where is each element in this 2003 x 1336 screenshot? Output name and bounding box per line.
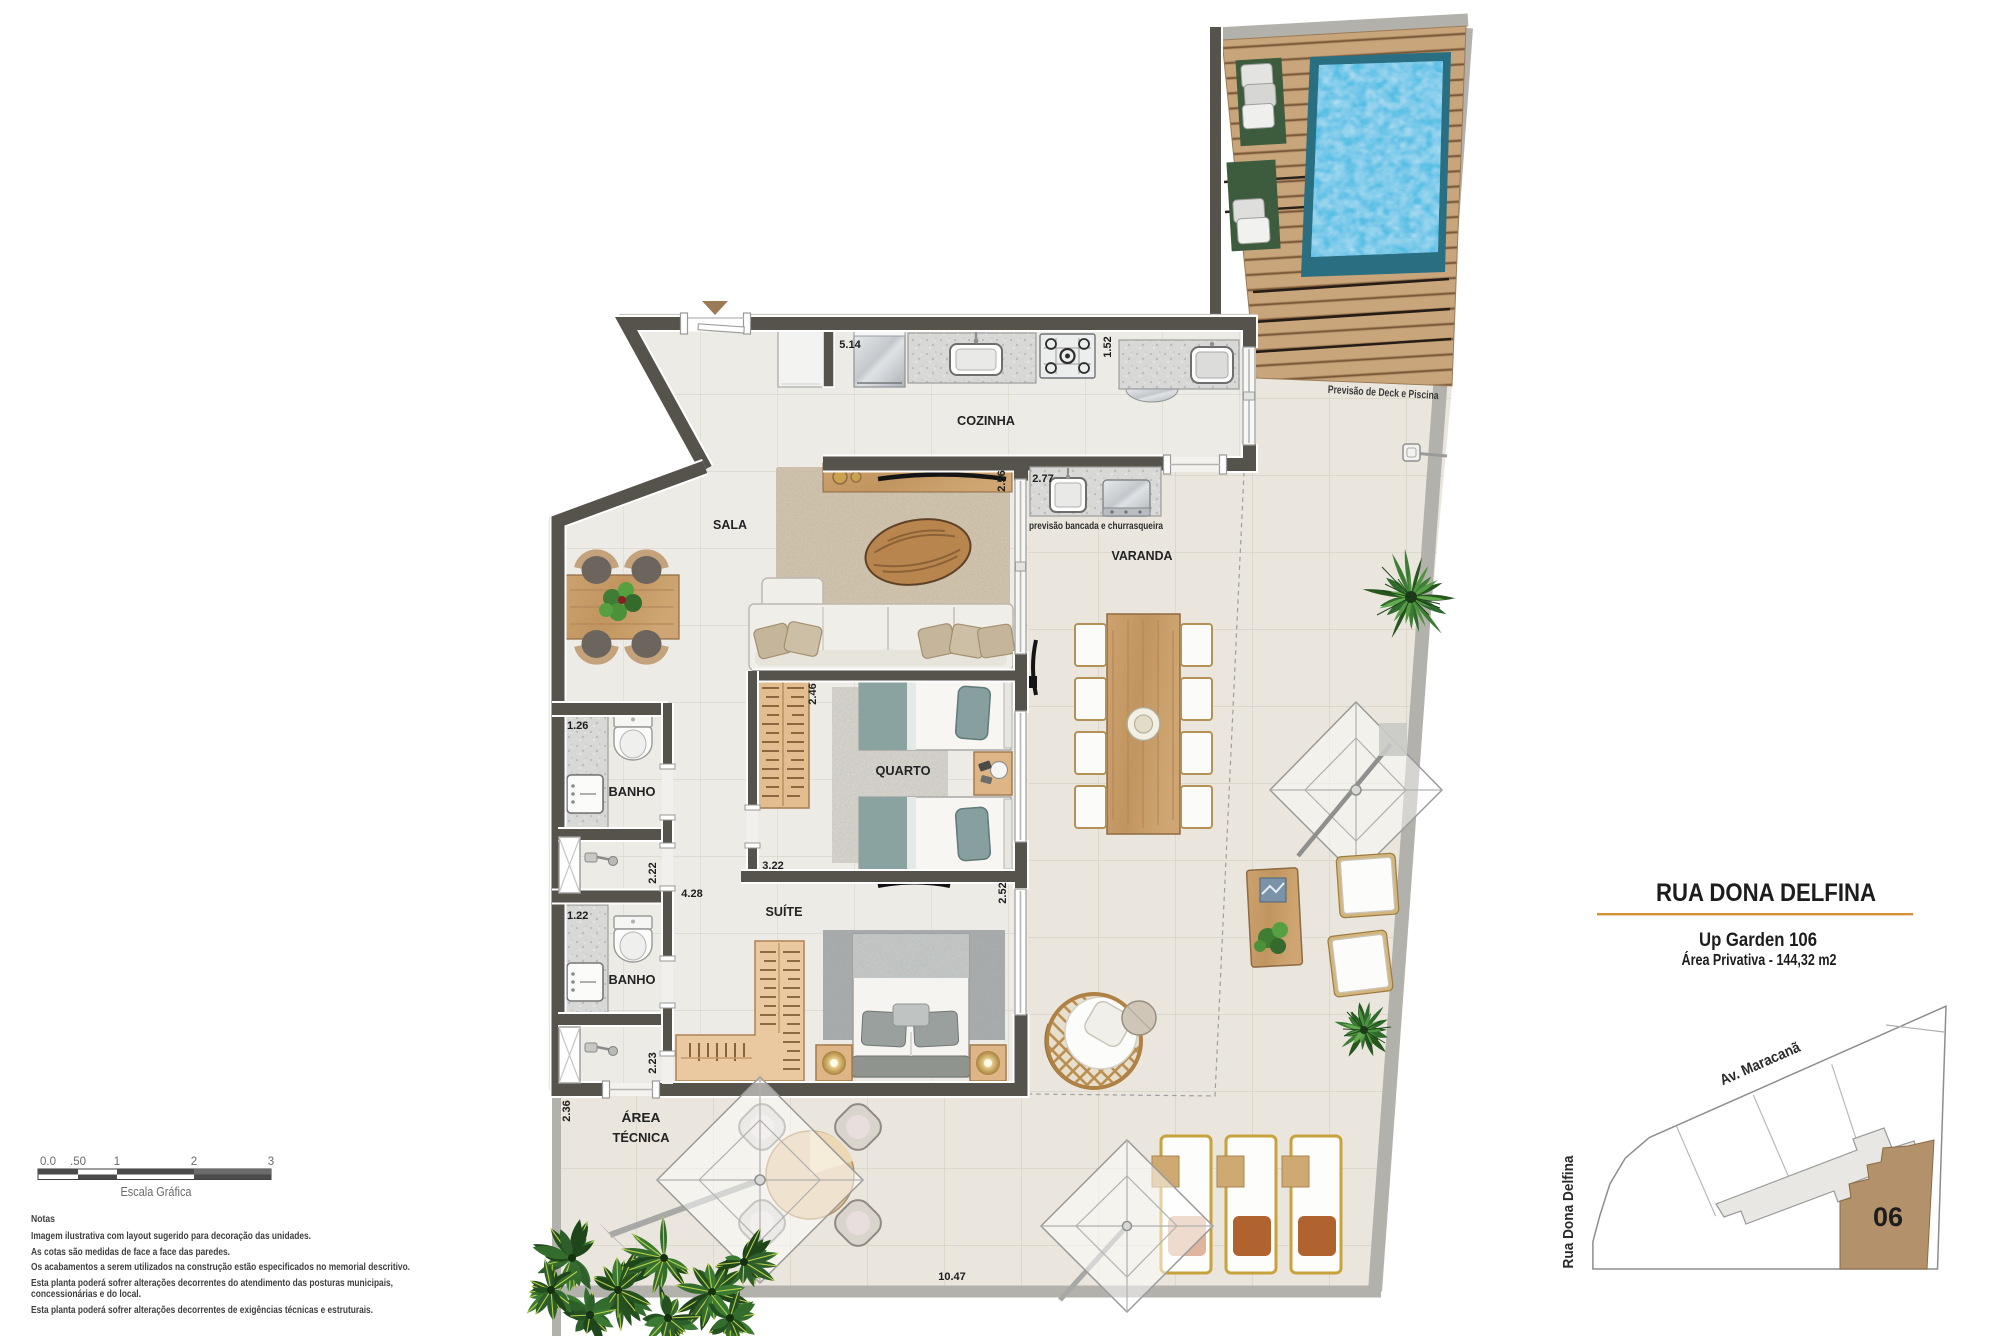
svg-text:Up Garden 106: Up Garden 106 [1699, 930, 1817, 951]
svg-text:2.52: 2.52 [997, 882, 1009, 903]
svg-text:Esta planta poderá sofrer alte: Esta planta poderá sofrer alterações dec… [31, 1278, 393, 1289]
svg-text:As cotas são medidas de face a: As cotas são medidas de face a face das … [31, 1247, 230, 1258]
svg-text:2.36: 2.36 [561, 1100, 573, 1121]
svg-text:SALA: SALA [713, 517, 748, 532]
svg-text:Área Privativa - 144,32 m2: Área Privativa - 144,32 m2 [1682, 950, 1837, 969]
svg-text:concessionárias e do local.: concessionárias e do local. [31, 1289, 141, 1300]
svg-text:TÉCNICA: TÉCNICA [613, 1130, 670, 1145]
svg-text:RUA DONA DELFINA: RUA DONA DELFINA [1656, 879, 1876, 907]
svg-text:2: 2 [191, 1156, 197, 1168]
svg-text:Notas: Notas [31, 1214, 55, 1225]
svg-text:2.56: 2.56 [996, 470, 1008, 491]
svg-text:Esta planta poderá sofrer alte: Esta planta poderá sofrer alterações dec… [31, 1305, 373, 1316]
svg-text:BANHO: BANHO [609, 785, 656, 799]
svg-text:QUARTO: QUARTO [876, 763, 931, 778]
svg-text:06: 06 [1873, 1202, 1903, 1232]
svg-text:2.23: 2.23 [647, 1052, 659, 1073]
svg-text:1.22: 1.22 [567, 910, 588, 922]
svg-text:Rua Dona Delfina: Rua Dona Delfina [1560, 1155, 1577, 1269]
svg-text:3: 3 [268, 1156, 274, 1168]
svg-text:5.14: 5.14 [839, 339, 861, 351]
svg-text:ÁREA: ÁREA [622, 1110, 661, 1125]
svg-text:1.26: 1.26 [567, 720, 588, 732]
svg-text:2.46: 2.46 [807, 683, 819, 704]
svg-text:previsão bancada e churrasquei: previsão bancada e churrasqueira [1029, 521, 1163, 532]
svg-text:COZINHA: COZINHA [957, 413, 1016, 428]
svg-text:10.47: 10.47 [938, 1271, 966, 1283]
svg-text:.50: .50 [70, 1156, 86, 1168]
svg-text:BANHO: BANHO [609, 973, 656, 987]
svg-text:Escala Gráfica: Escala Gráfica [121, 1184, 193, 1199]
svg-text:SUÍTE: SUÍTE [766, 904, 803, 919]
svg-text:2.77: 2.77 [1032, 473, 1053, 485]
svg-text:VARANDA: VARANDA [1112, 548, 1174, 563]
svg-text:3.22: 3.22 [762, 860, 783, 872]
svg-text:Os acabamentos a serem utiliza: Os acabamentos a serem utilizados na con… [31, 1262, 410, 1273]
svg-text:2.22: 2.22 [647, 862, 659, 883]
svg-text:1: 1 [114, 1156, 120, 1168]
svg-text:0.0: 0.0 [40, 1156, 56, 1168]
svg-text:4.28: 4.28 [681, 888, 702, 900]
svg-text:1.52: 1.52 [1102, 336, 1114, 357]
svg-text:Imagem ilustrativa com layout: Imagem ilustrativa com layout sugerido p… [31, 1231, 311, 1242]
